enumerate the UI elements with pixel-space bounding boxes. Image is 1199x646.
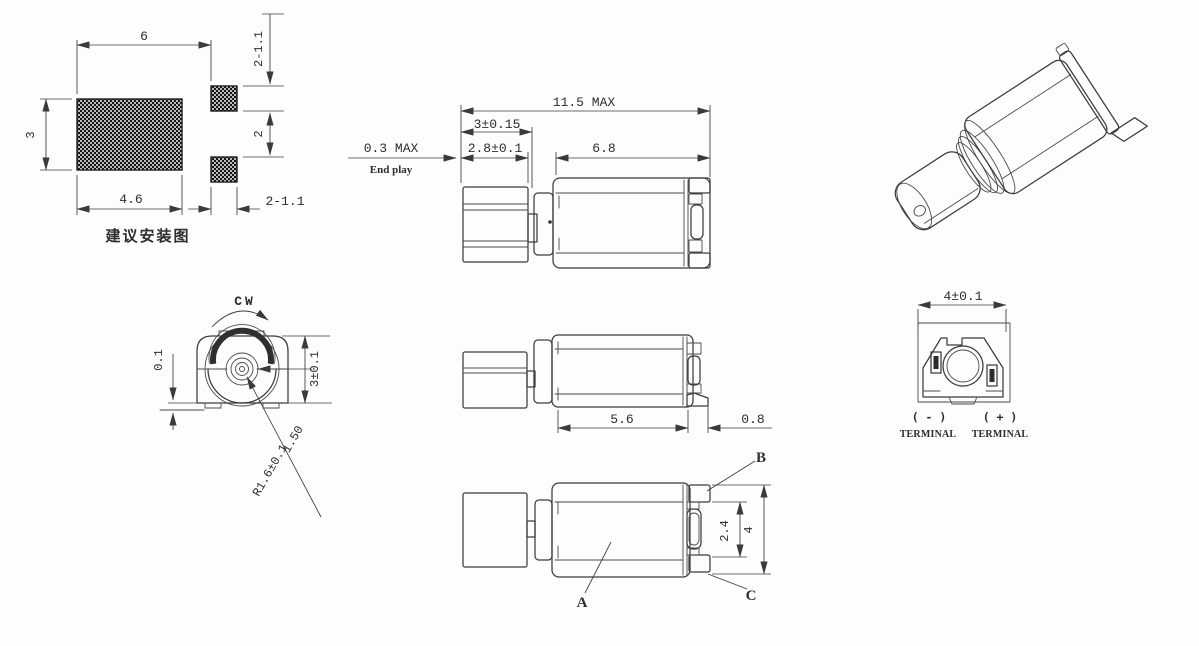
dim-text-terminal-gap: 2.4 bbox=[718, 520, 732, 542]
end-play-label: End play bbox=[370, 164, 413, 176]
land-pattern-view: 6 2-1.1 2 3 4.6 2-1.1 建议安装图 bbox=[24, 14, 305, 245]
side-view-dimensioned: 11.5 MAX 3±0.15 2.8±0.1 0.3 MAX End play… bbox=[348, 95, 710, 268]
dim-text-weight-body: 2.8±0.1 bbox=[468, 141, 523, 156]
iso-bracket-foot bbox=[1111, 114, 1147, 144]
solder-pad-small-bottom bbox=[211, 157, 237, 182]
rotor-circle-inner bbox=[947, 350, 979, 382]
terminal-bump bbox=[691, 205, 703, 239]
bottom-bump bbox=[949, 397, 977, 404]
mount-tab-bottom bbox=[689, 253, 710, 268]
weight-outline bbox=[463, 352, 527, 408]
iso-weight bbox=[890, 147, 985, 235]
land-pattern-title: 建议安装图 bbox=[105, 227, 190, 245]
rotor-circle bbox=[943, 346, 983, 386]
dim-text-weight-len: 3±0.15 bbox=[474, 117, 521, 132]
dim-text-can: 5.6 bbox=[610, 412, 633, 427]
dim-text-4-6: 4.6 bbox=[119, 192, 142, 207]
label-c: C bbox=[746, 588, 757, 604]
dim-text-bracket: 0.8 bbox=[741, 412, 764, 427]
label-a-leader bbox=[585, 542, 611, 593]
dim-text-clearance: 0.1 bbox=[152, 349, 166, 371]
dim-text-height: 3 bbox=[24, 131, 38, 138]
end-view: 4±0.1 ( - ) TERMINAL ( + ) TERMINAL bbox=[900, 289, 1029, 440]
positive-sign: ( + ) bbox=[983, 410, 1018, 424]
end-step bbox=[689, 240, 702, 252]
side-view-plain: 5.6 0.8 bbox=[463, 335, 772, 433]
terminal-negative-contact bbox=[934, 356, 939, 369]
iso-weight-hole bbox=[912, 203, 928, 218]
terminal-bump bbox=[688, 356, 700, 385]
label-b-leader bbox=[707, 461, 755, 491]
dim-text-pads-bottom: 2-1.1 bbox=[265, 194, 304, 209]
negative-terminal-label: TERMINAL bbox=[900, 429, 957, 440]
motor-body bbox=[552, 483, 690, 577]
dim-text-radius: R1.6±0.1 bbox=[250, 442, 291, 499]
drawing-canvas: 6 2-1.1 2 3 4.6 2-1.1 建议安装图 bbox=[0, 0, 1199, 646]
iso-body-chamfer bbox=[975, 74, 1071, 136]
dim-text-body-len: 6.8 bbox=[592, 141, 615, 156]
dim-text-6: 6 bbox=[140, 29, 148, 44]
terminal-positive-contact bbox=[990, 369, 995, 382]
dim-text-overall: 11.5 MAX bbox=[553, 95, 616, 110]
end-step bbox=[687, 502, 699, 509]
positive-terminal-label: TERMINAL bbox=[972, 429, 1029, 440]
mount-tab-top bbox=[689, 178, 710, 193]
mount-tab-bottom bbox=[689, 555, 710, 572]
isometric-view bbox=[874, 30, 1147, 263]
label-a: A bbox=[577, 595, 588, 611]
label-c-leader bbox=[708, 574, 747, 589]
negative-sign: ( - ) bbox=[912, 410, 947, 424]
mount-bracket-foot bbox=[687, 393, 708, 406]
front-view: CW 0.1 3±0.1 1.50 R1.6±0.1 bbox=[152, 294, 332, 517]
shaft bbox=[528, 214, 537, 242]
weight-outline bbox=[463, 493, 527, 567]
bracket-plate-outline bbox=[918, 323, 1010, 402]
end-step bbox=[687, 343, 701, 354]
dim-text-width: 4 bbox=[742, 526, 756, 533]
dim-text-end-play: 0.3 MAX bbox=[364, 141, 419, 156]
mount-tab-top bbox=[689, 485, 710, 502]
label-b: B bbox=[756, 450, 766, 466]
shaft-ring bbox=[236, 363, 249, 376]
iso-body-chamfer bbox=[1002, 116, 1098, 178]
shaft-center-mark bbox=[548, 220, 552, 224]
motor-body bbox=[553, 178, 710, 268]
housing-foot bbox=[205, 403, 221, 408]
dim-text-gap: 2 bbox=[252, 130, 266, 137]
iso-body bbox=[961, 57, 1111, 198]
rotation-direction-label: CW bbox=[234, 294, 256, 309]
weight-outline bbox=[463, 187, 528, 262]
motor-body bbox=[552, 335, 693, 407]
housing-foot bbox=[263, 403, 279, 408]
top-view: A B C 2.4 4 bbox=[463, 450, 771, 611]
bearing-cap bbox=[534, 340, 552, 403]
shaft-center bbox=[240, 367, 245, 372]
iso-weight-edge bbox=[924, 188, 978, 223]
solder-pad-large bbox=[77, 99, 182, 170]
bearing-cap bbox=[535, 500, 552, 560]
bearing-ring bbox=[231, 358, 253, 380]
shaft bbox=[527, 521, 535, 537]
dim-text-end-width: 4±0.1 bbox=[943, 289, 982, 304]
end-step bbox=[689, 194, 702, 204]
solder-pad-small-top bbox=[211, 86, 237, 111]
vibration-motor-drawing: 6 2-1.1 2 3 4.6 2-1.1 建议安装图 bbox=[0, 0, 1199, 646]
dim-text-pads-top: 2-1.1 bbox=[252, 31, 266, 67]
